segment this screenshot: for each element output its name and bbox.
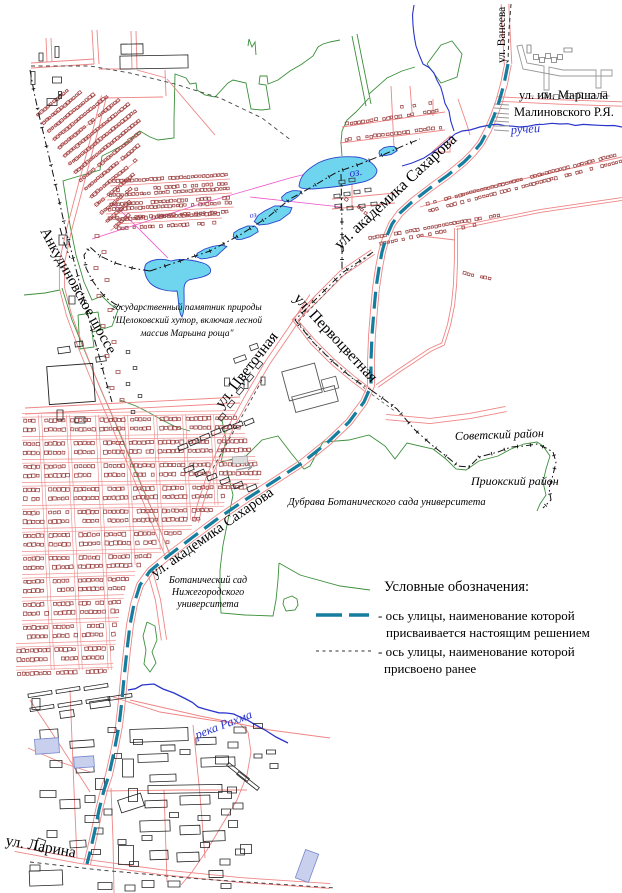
svg-text:Дубрава Ботанического сада уни: Дубрава Ботанического сада университета xyxy=(287,497,486,508)
svg-text:Ботанический сад: Ботанический сад xyxy=(168,575,247,586)
svg-text:Условные обозначения:: Условные обозначения: xyxy=(384,579,529,595)
svg-text:Нижегородского: Нижегородского xyxy=(171,587,244,598)
svg-text:ручей: ручей xyxy=(509,121,541,137)
svg-text:массив Марьина роща": массив Марьина роща" xyxy=(139,329,233,339)
svg-text:оз.: оз. xyxy=(348,166,363,180)
svg-text:присваивается настоящим решени: присваивается настоящим решением xyxy=(386,625,590,640)
svg-text:ул. им. Маршала: ул. им. Маршала xyxy=(519,88,608,102)
svg-text:- ось улицы, наименование кото: - ось улицы, наименование которой xyxy=(378,608,575,623)
svg-text:ул. Ванеева: ул. Ванеева xyxy=(496,7,508,63)
svg-text:"Щелоковский хутор, включая ле: "Щелоковский хутор, включая лесной xyxy=(112,315,263,326)
svg-text:присвоено ранее: присвоено ранее xyxy=(384,661,476,676)
svg-text:университета: университета xyxy=(176,599,239,610)
svg-text:- ось улицы, наименование кото: - ось улицы, наименование которой xyxy=(378,644,575,659)
svg-text:Приокский район: Приокский район xyxy=(470,474,559,488)
svg-text:Малиновского Р.Я.: Малиновского Р.Я. xyxy=(514,105,614,119)
svg-text:государственный памятник приро: государственный памятник природы xyxy=(112,302,262,313)
